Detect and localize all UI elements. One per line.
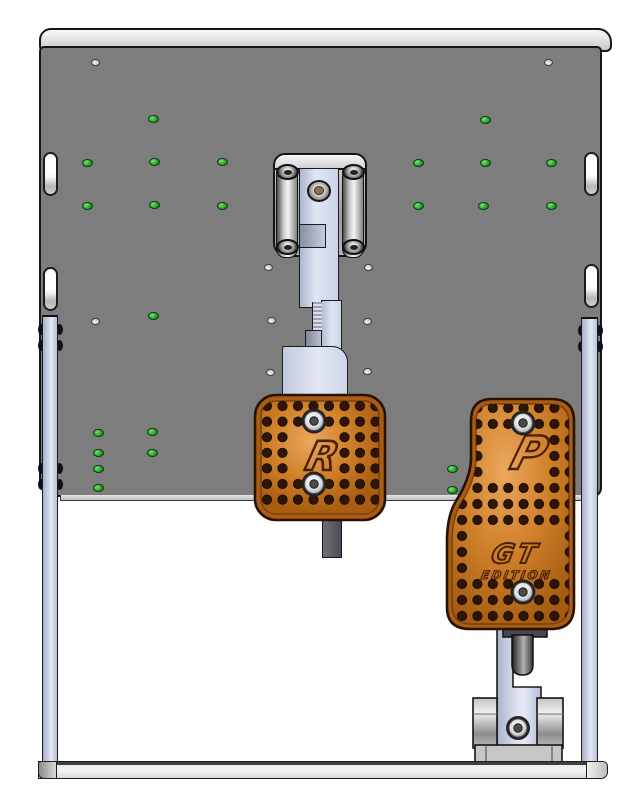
pedal-grip-hole bbox=[293, 401, 302, 410]
pedal-grip-hole bbox=[534, 595, 543, 604]
pedal-grip-hole bbox=[340, 417, 349, 426]
pedal-grip-hole bbox=[262, 433, 271, 442]
throttle-clamp-roller-left bbox=[473, 698, 497, 748]
pedal-grip-hole bbox=[488, 403, 497, 412]
pedal-grip-hole bbox=[355, 417, 364, 426]
pedal-screw-socket bbox=[519, 419, 527, 427]
pedal-grip-hole bbox=[371, 464, 380, 473]
pedal-grip-hole bbox=[278, 433, 287, 442]
pedal-grip-hole bbox=[457, 579, 466, 588]
pedal-grip-hole bbox=[340, 448, 349, 457]
pivot-corner-screw bbox=[276, 239, 299, 255]
pedal-grip-hole bbox=[504, 515, 513, 524]
pedal-grip-hole bbox=[355, 479, 364, 488]
pedal-grip-hole bbox=[504, 483, 513, 492]
pivot-corner-screw bbox=[342, 239, 365, 255]
pedal-grip-hole bbox=[550, 579, 559, 588]
pedal-grip-hole bbox=[340, 464, 349, 473]
pedal-grip-hole bbox=[550, 499, 559, 508]
pedal-grip-hole bbox=[371, 479, 380, 488]
brake-pivot-axle-screw-center bbox=[314, 186, 324, 195]
cad-viewport[interactable]: R bbox=[0, 0, 638, 798]
pedal-grip-hole bbox=[457, 467, 466, 476]
pedal-grip-hole bbox=[550, 483, 559, 492]
pedal-grip-hole bbox=[534, 483, 543, 492]
pedal-grip-hole bbox=[278, 448, 287, 457]
pedal-grip-hole bbox=[534, 403, 543, 412]
pedal-grip-hole bbox=[371, 448, 380, 457]
pedal-grip-hole bbox=[457, 451, 466, 460]
pedal-grip-hole bbox=[519, 499, 528, 508]
pedal-grip-hole bbox=[550, 467, 559, 476]
pedal-grip-hole bbox=[262, 464, 271, 473]
pedal-grip-hole bbox=[550, 435, 559, 444]
pedal-grip-hole bbox=[262, 417, 271, 426]
pedal-grip-hole bbox=[355, 448, 364, 457]
pedal-grip-hole bbox=[371, 417, 380, 426]
brake-pivot-axle-screw bbox=[307, 180, 331, 202]
pedal-grip-hole bbox=[488, 499, 497, 508]
throttle-pedal: P GT EDITION bbox=[438, 391, 583, 636]
pedal-grip-hole bbox=[488, 419, 497, 428]
pedal-grip-hole bbox=[355, 433, 364, 442]
pedal-grip-hole bbox=[504, 403, 513, 412]
pedal-grip-hole bbox=[340, 495, 349, 504]
pedal-screw-socket bbox=[310, 480, 318, 488]
pedal-grip-hole bbox=[293, 417, 302, 426]
pedal-grip-hole bbox=[504, 595, 513, 604]
pedal-grip-hole bbox=[473, 483, 482, 492]
pedal-grip-hole bbox=[262, 495, 271, 504]
pedal-grip-hole bbox=[519, 483, 528, 492]
pedal-grip-hole bbox=[534, 499, 543, 508]
pedal-grip-hole bbox=[457, 611, 466, 620]
pedal-grip-hole bbox=[534, 611, 543, 620]
pedal-grip-hole bbox=[457, 435, 466, 444]
throttle-series-engraving: GT bbox=[488, 539, 543, 570]
pedal-grip-hole bbox=[473, 515, 482, 524]
pedal-grip-hole bbox=[355, 401, 364, 410]
pedal-grip-hole bbox=[534, 515, 543, 524]
pedal-grip-hole bbox=[550, 515, 559, 524]
pedal-grip-hole bbox=[550, 451, 559, 460]
throttle-pivot-cylinder bbox=[512, 635, 533, 675]
pedal-grip-hole bbox=[473, 611, 482, 620]
pedal-grip-hole bbox=[504, 611, 513, 620]
pedal-grip-hole bbox=[457, 563, 466, 572]
pedal-grip-hole bbox=[355, 495, 364, 504]
pedal-screw-socket bbox=[310, 417, 318, 425]
bottom-rail-left-cap bbox=[38, 761, 57, 779]
throttle-pivot-assembly bbox=[455, 618, 615, 768]
pedal-grip-hole bbox=[293, 479, 302, 488]
pedal-grip-hole bbox=[262, 479, 271, 488]
pedal-grip-hole bbox=[488, 515, 497, 524]
pedal-grip-hole bbox=[340, 479, 349, 488]
pedal-screw-socket bbox=[519, 588, 527, 596]
pedal-grip-hole bbox=[550, 595, 559, 604]
pedal-grip-hole bbox=[293, 495, 302, 504]
pivot-corner-screw bbox=[276, 164, 299, 180]
brake-pedal: R bbox=[246, 388, 392, 528]
pedal-grip-hole bbox=[340, 401, 349, 410]
pivot-corner-screw bbox=[342, 164, 365, 180]
bottom-rail-right-cap bbox=[586, 761, 608, 779]
pedal-grip-hole bbox=[457, 531, 466, 540]
pedal-grip-hole bbox=[488, 483, 497, 492]
pedal-grip-hole bbox=[457, 403, 466, 412]
pedal-grip-hole bbox=[504, 499, 513, 508]
throttle-edition-engraving: EDITION bbox=[480, 568, 553, 582]
pedal-grip-hole bbox=[324, 401, 333, 410]
pedal-grip-hole bbox=[457, 547, 466, 556]
pedal-grip-hole bbox=[278, 479, 287, 488]
bottom-rail bbox=[38, 761, 594, 779]
pedal-grip-hole bbox=[457, 515, 466, 524]
throttle-clamp-roller-right bbox=[537, 698, 563, 748]
pedal-grip-hole bbox=[262, 448, 271, 457]
pedal-grip-hole bbox=[550, 611, 559, 620]
brake-arm-inner-block bbox=[299, 224, 326, 248]
pedal-grip-hole bbox=[278, 495, 287, 504]
pedal-grip-hole bbox=[473, 499, 482, 508]
pedal-grip-hole bbox=[457, 595, 466, 604]
pedal-grip-hole bbox=[473, 595, 482, 604]
pedal-grip-hole bbox=[488, 611, 497, 620]
throttle-clamp-base bbox=[475, 745, 562, 762]
pedal-grip-hole bbox=[371, 433, 380, 442]
pedal-grip-hole bbox=[457, 419, 466, 428]
pedal-grip-hole bbox=[278, 464, 287, 473]
pedal-grip-hole bbox=[519, 515, 528, 524]
pedal-grip-hole bbox=[519, 611, 528, 620]
pedal-grip-hole bbox=[324, 495, 333, 504]
pedal-grip-hole bbox=[355, 464, 364, 473]
pedal-grip-hole bbox=[278, 417, 287, 426]
pedal-grip-hole bbox=[278, 401, 287, 410]
throttle-clamp-screw bbox=[506, 716, 530, 740]
pedal-grip-hole bbox=[488, 595, 497, 604]
